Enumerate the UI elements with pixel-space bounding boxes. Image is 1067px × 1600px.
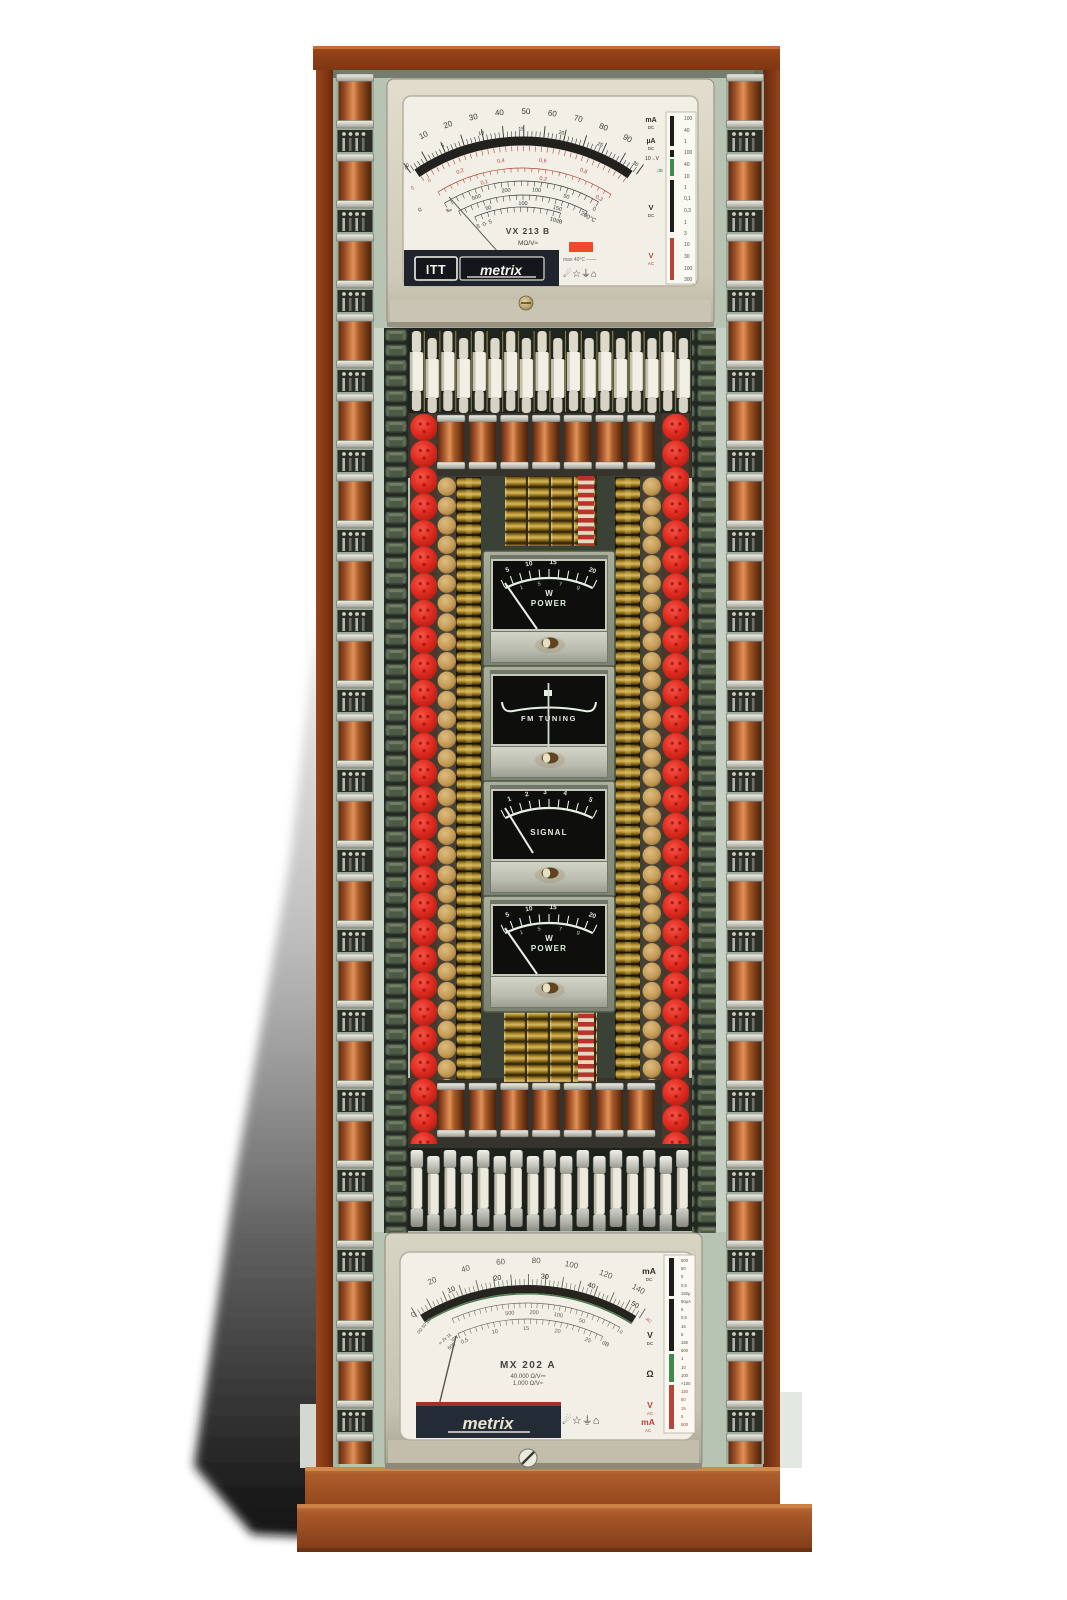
- svg-text:40: 40: [495, 108, 505, 118]
- svg-text:100: 100: [684, 266, 693, 272]
- svg-text:1: 1: [684, 139, 687, 145]
- svg-text:500: 500: [681, 1348, 689, 1353]
- svg-text:0,6: 0,6: [539, 158, 547, 165]
- svg-text:mA: mA: [645, 117, 656, 124]
- svg-text:100: 100: [684, 150, 693, 156]
- svg-text:DC: DC: [648, 125, 655, 130]
- svg-text:0,5: 0,5: [681, 1283, 687, 1288]
- svg-text:15: 15: [518, 126, 524, 132]
- svg-text:40: 40: [684, 128, 690, 134]
- svg-text:3: 3: [543, 789, 547, 796]
- svg-text:200: 200: [529, 1310, 538, 1316]
- svg-text:metrix: metrix: [480, 262, 523, 278]
- svg-text:dB: dB: [657, 168, 663, 173]
- svg-text:AC: AC: [645, 1428, 652, 1433]
- svg-text:mA: mA: [641, 1417, 655, 1427]
- svg-text:500: 500: [681, 1422, 689, 1427]
- svg-text:60: 60: [547, 108, 558, 118]
- svg-text:V: V: [647, 1330, 653, 1340]
- svg-text:V: V: [648, 251, 653, 260]
- svg-text:µA: µA: [646, 138, 655, 145]
- svg-text:VX 213 B: VX 213 B: [506, 226, 550, 236]
- svg-text:80: 80: [532, 1256, 542, 1265]
- svg-text:30: 30: [684, 254, 690, 260]
- svg-text:100: 100: [684, 116, 693, 122]
- svg-text:50: 50: [681, 1266, 686, 1271]
- svg-text:1.000 Ω/V≈: 1.000 Ω/V≈: [513, 1381, 544, 1387]
- svg-text:150: 150: [681, 1340, 689, 1345]
- svg-text:50: 50: [521, 107, 531, 116]
- svg-text:500: 500: [505, 1310, 515, 1317]
- svg-text:30: 30: [541, 1273, 549, 1281]
- svg-text:40: 40: [684, 162, 690, 168]
- svg-text:200: 200: [501, 187, 511, 194]
- svg-text:V: V: [647, 1400, 653, 1410]
- svg-text:0,1: 0,1: [684, 196, 691, 202]
- svg-text:0,3: 0,3: [684, 208, 691, 214]
- svg-text:20: 20: [493, 1275, 502, 1283]
- svg-text:metrix: metrix: [462, 1414, 515, 1433]
- svg-text:0,5: 0,5: [681, 1315, 687, 1320]
- svg-text:15: 15: [681, 1324, 686, 1329]
- svg-text:1: 1: [684, 220, 687, 226]
- svg-text:mA: mA: [642, 1266, 656, 1276]
- svg-text:W: W: [545, 589, 553, 598]
- svg-text:20: 20: [554, 1328, 561, 1335]
- svg-text:15: 15: [523, 1326, 529, 1332]
- svg-text:SIGNAL: SIGNAL: [530, 828, 567, 837]
- svg-text:ITT: ITT: [426, 263, 446, 277]
- svg-text:POWER: POWER: [531, 599, 567, 608]
- svg-text:10→V: 10→V: [645, 156, 660, 162]
- svg-text:15: 15: [549, 904, 557, 911]
- svg-text:DC: DC: [646, 1277, 653, 1282]
- svg-text:15: 15: [681, 1406, 686, 1411]
- svg-text:3: 3: [684, 231, 687, 237]
- svg-text:×100: ×100: [681, 1381, 691, 1386]
- svg-text:W: W: [545, 934, 553, 943]
- svg-text:☄☆⏚⌂: ☄☆⏚⌂: [563, 268, 597, 280]
- svg-text:5: 5: [537, 926, 541, 932]
- svg-text:10: 10: [684, 174, 690, 180]
- svg-text:60: 60: [496, 1257, 506, 1267]
- svg-text:MΩ/V≈: MΩ/V≈: [518, 240, 538, 247]
- svg-text:50µA: 50µA: [681, 1299, 691, 1304]
- svg-text:MX 202 A: MX 202 A: [500, 1360, 556, 1371]
- svg-text:1: 1: [684, 185, 687, 191]
- svg-text:40.000 Ω/V⎓: 40.000 Ω/V⎓: [511, 1374, 546, 1380]
- svg-text:☄☆⏚⌂: ☄☆⏚⌂: [562, 1414, 599, 1427]
- svg-text:150: 150: [681, 1389, 689, 1394]
- svg-text:POWER: POWER: [531, 944, 567, 953]
- svg-text:100: 100: [681, 1373, 689, 1378]
- svg-text:AC: AC: [647, 1411, 654, 1416]
- svg-text:DC: DC: [648, 146, 655, 151]
- svg-text:10: 10: [681, 1365, 686, 1370]
- svg-text:5: 5: [537, 581, 541, 587]
- svg-text:10: 10: [491, 1329, 498, 1336]
- svg-text:V: V: [648, 203, 653, 212]
- svg-text:FM TUNING: FM TUNING: [521, 714, 577, 723]
- svg-text:DC: DC: [647, 1341, 654, 1346]
- svg-text:50: 50: [681, 1397, 686, 1402]
- svg-text:100: 100: [518, 201, 527, 207]
- svg-text:Ω: Ω: [646, 1369, 653, 1379]
- svg-text:150µ: 150µ: [681, 1291, 691, 1296]
- svg-text:max 40°C ——: max 40°C ——: [563, 257, 596, 263]
- svg-text:300: 300: [684, 277, 693, 283]
- svg-text:0,4: 0,4: [497, 158, 505, 165]
- svg-text:10: 10: [684, 242, 690, 248]
- svg-text:DC: DC: [648, 213, 655, 218]
- svg-text:15: 15: [549, 559, 557, 566]
- svg-text:100: 100: [532, 187, 542, 194]
- svg-text:AC: AC: [648, 261, 655, 266]
- svg-text:500: 500: [681, 1258, 689, 1263]
